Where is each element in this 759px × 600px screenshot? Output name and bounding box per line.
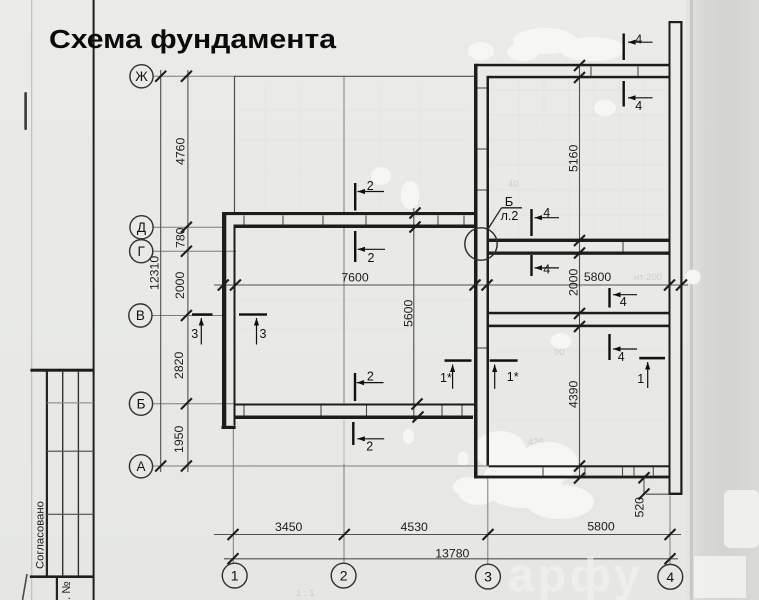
svg-text:Б: Б	[505, 194, 514, 209]
svg-text:3450: 3450	[275, 520, 303, 534]
svg-text:5160: 5160	[567, 144, 581, 172]
svg-text:13780: 13780	[435, 547, 469, 561]
svg-text:2000: 2000	[173, 271, 187, 299]
svg-text:4: 4	[543, 263, 550, 277]
svg-text:520: 520	[633, 497, 647, 518]
svg-text:1: 1	[231, 568, 239, 584]
svg-text:Д: Д	[137, 220, 146, 235]
svg-text:5800: 5800	[584, 270, 612, 284]
svg-text:2: 2	[367, 179, 374, 193]
svg-text:4: 4	[635, 33, 642, 47]
svg-text:4: 4	[666, 569, 674, 585]
svg-text:2: 2	[367, 370, 374, 384]
svg-text:2820: 2820	[172, 351, 186, 379]
svg-text:1*: 1*	[440, 371, 452, 385]
svg-text:1: 1	[637, 372, 644, 386]
svg-text:2: 2	[340, 568, 348, 584]
svg-text:1 : 1: 1 : 1	[296, 588, 315, 599]
svg-text:4530: 4530	[401, 520, 429, 534]
svg-text:Г: Г	[138, 244, 146, 259]
svg-text:2: 2	[366, 440, 373, 454]
svg-text:4: 4	[618, 350, 625, 364]
svg-text:л.2: л.2	[501, 209, 519, 223]
svg-text:4760: 4760	[174, 137, 188, 165]
svg-text:3: 3	[260, 327, 267, 341]
svg-text:В: В	[136, 308, 145, 323]
svg-text:4: 4	[620, 295, 627, 309]
svg-text:4: 4	[635, 99, 642, 113]
svg-text:40: 40	[508, 179, 519, 190]
svg-text:Согласовано: Согласовано	[35, 501, 47, 569]
svg-text:Ж: Ж	[135, 69, 148, 84]
svg-text:3: 3	[191, 327, 198, 341]
svg-text:арфу: арфу	[508, 548, 644, 600]
svg-text:1950: 1950	[172, 425, 186, 453]
svg-text:нт 200: нт 200	[634, 272, 662, 283]
svg-text:2: 2	[368, 251, 375, 265]
svg-text:. №: . №	[61, 581, 73, 600]
svg-text:4390: 4390	[567, 380, 581, 408]
svg-text:4: 4	[543, 206, 550, 220]
svg-text:5600: 5600	[402, 299, 416, 327]
svg-text:12310: 12310	[148, 256, 162, 290]
svg-text:А: А	[136, 459, 145, 474]
svg-text:Схема фундамента: Схема фундамента	[49, 26, 337, 54]
svg-text:2000: 2000	[567, 268, 581, 296]
svg-text:3: 3	[484, 569, 492, 585]
svg-text:7600: 7600	[341, 271, 369, 285]
svg-text:Б: Б	[137, 396, 146, 411]
svg-text:5800: 5800	[587, 520, 615, 534]
svg-text:1*: 1*	[507, 370, 519, 384]
svg-text:780: 780	[174, 227, 188, 248]
